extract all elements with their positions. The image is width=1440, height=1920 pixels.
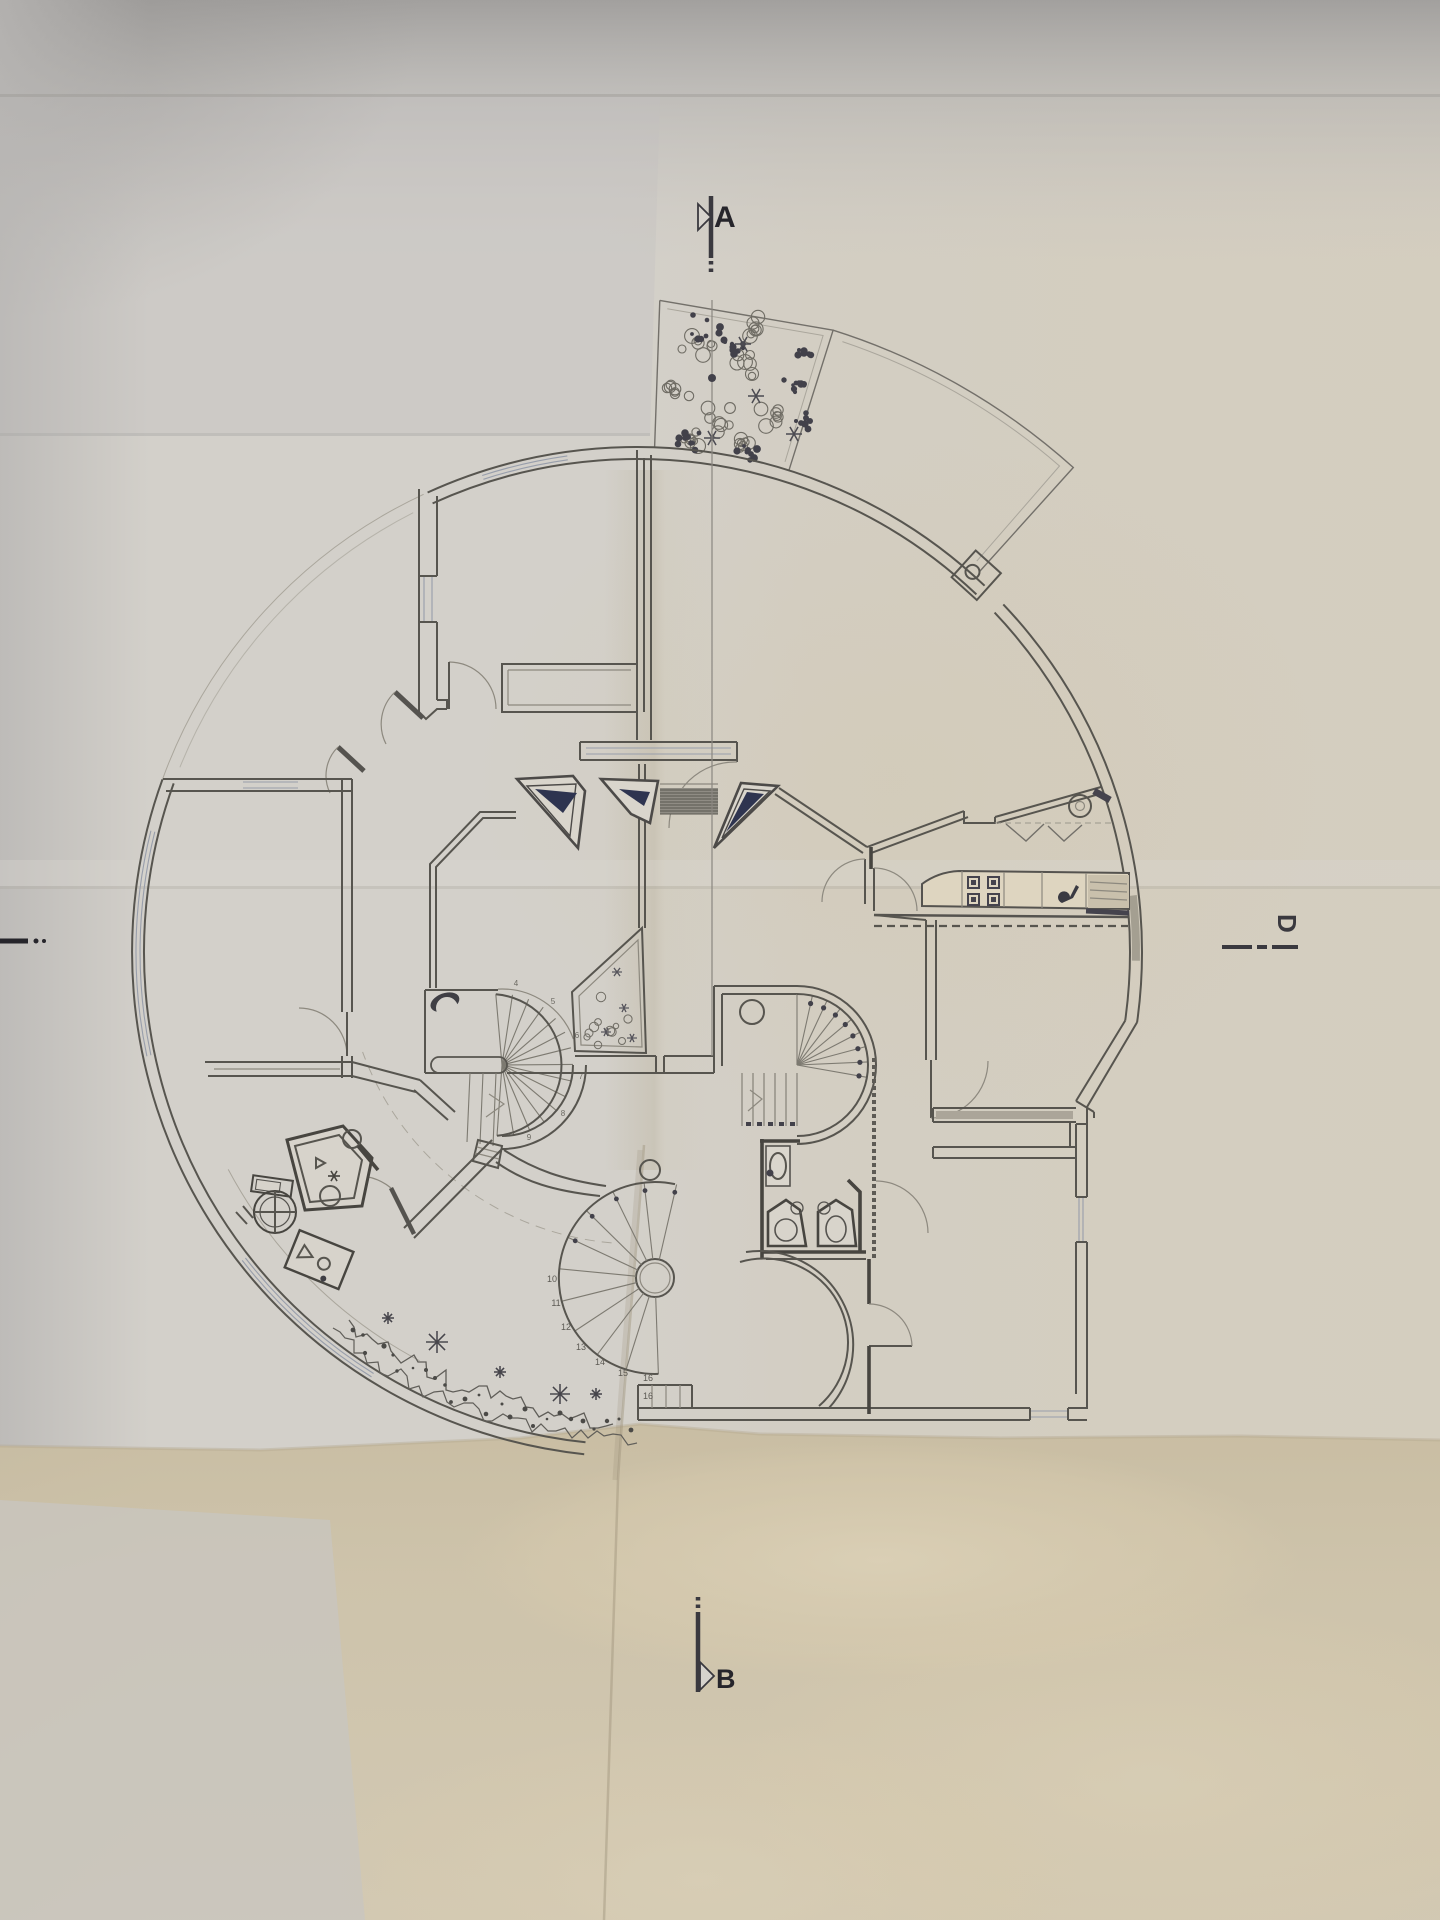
svg-text:8: 8	[561, 1109, 566, 1118]
svg-text:9: 9	[527, 1133, 532, 1142]
svg-text:B: B	[716, 1664, 736, 1694]
svg-text:6: 6	[575, 1031, 580, 1040]
svg-text:10: 10	[547, 1274, 557, 1284]
svg-text:11: 11	[551, 1298, 560, 1308]
svg-text:A: A	[714, 201, 736, 234]
svg-text:13: 13	[576, 1342, 586, 1352]
svg-text:4: 4	[514, 979, 519, 988]
svg-text:14: 14	[595, 1357, 605, 1367]
svg-text:5: 5	[551, 997, 556, 1006]
svg-text:D: D	[1272, 914, 1302, 933]
svg-text:12: 12	[561, 1322, 571, 1332]
svg-text:16: 16	[643, 1391, 653, 1401]
svg-text:15: 15	[618, 1368, 628, 1378]
svg-text:16: 16	[643, 1373, 653, 1383]
